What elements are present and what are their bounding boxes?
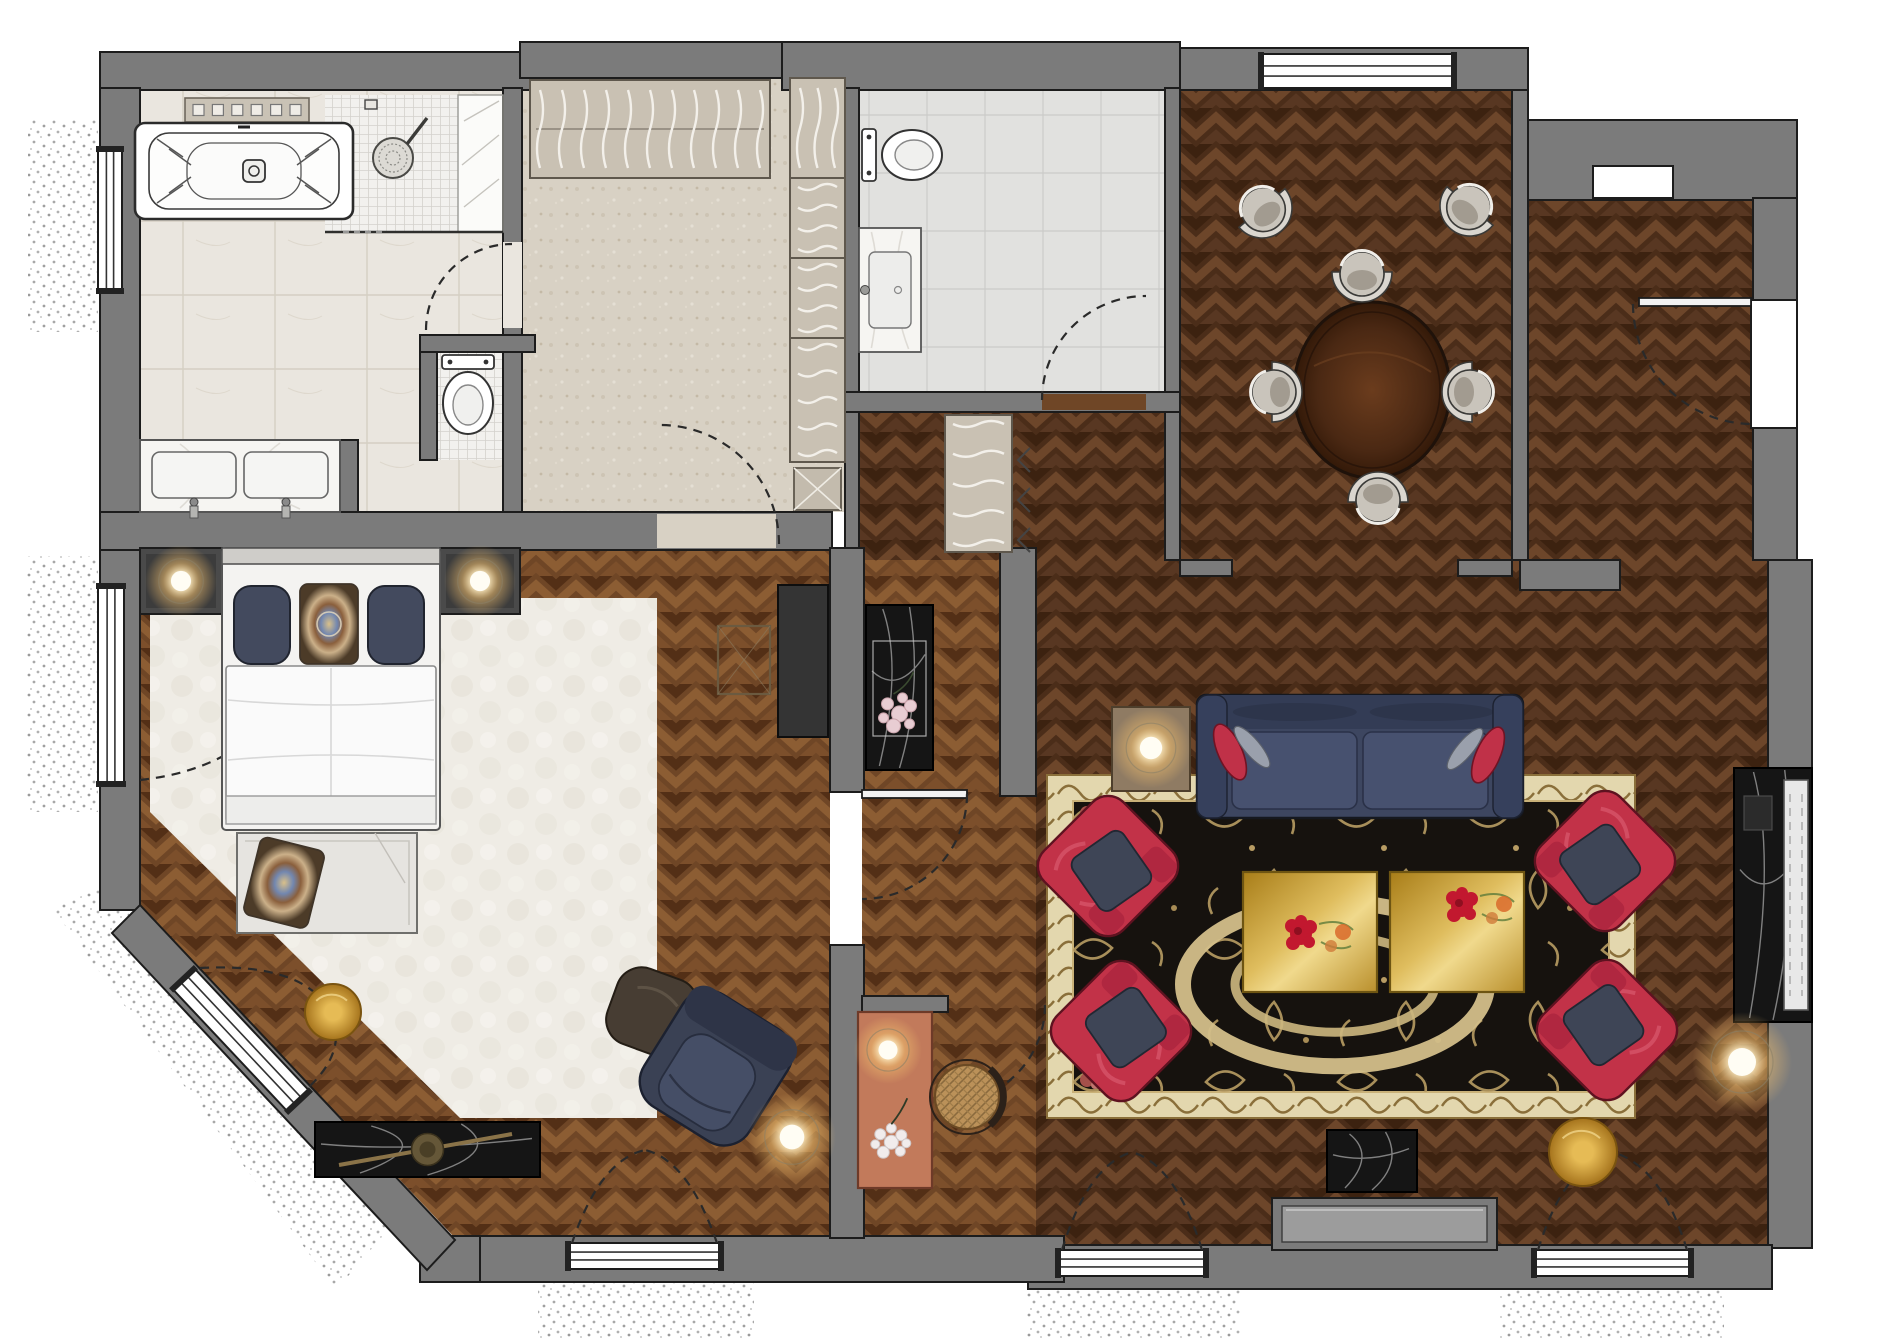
french-window-living-left xyxy=(1055,1248,1209,1278)
window-bathroom-west xyxy=(96,146,124,294)
niche-entry xyxy=(1593,166,1673,198)
tv-sideboard xyxy=(778,585,828,737)
wall-dining-stub-w xyxy=(1180,560,1232,576)
floor-lamp-bedroom xyxy=(748,1093,836,1181)
wall-dining-east xyxy=(1512,90,1528,560)
wall-top-dressing xyxy=(520,42,784,78)
bathtub-shelf xyxy=(185,98,309,122)
wardrobe-col-a xyxy=(790,78,845,178)
coffee-table-gold-right xyxy=(1390,872,1524,992)
balcony-bath-west xyxy=(28,118,98,332)
side-table-marble xyxy=(1327,1130,1417,1192)
entry-door-gap xyxy=(1751,300,1797,428)
pouf-gold-living xyxy=(1549,1118,1617,1186)
balcony-bedroom-west xyxy=(26,556,98,812)
wall-hall-east xyxy=(1000,548,1036,796)
console-marble-bedroom xyxy=(315,1122,540,1177)
wall-toilet-stub-h xyxy=(420,335,535,352)
wall-toilet-stub-v xyxy=(420,335,437,460)
wall-top-bathroom xyxy=(100,52,530,90)
toilet-wc xyxy=(862,129,942,181)
coffee-table-gold-left xyxy=(1243,872,1377,992)
floor-plan-stage xyxy=(0,0,1877,1340)
bench xyxy=(237,833,417,933)
wardrobe-col-d xyxy=(790,338,845,462)
floor-corridor xyxy=(1528,200,1753,560)
coat-closet xyxy=(945,415,1012,552)
lamp-desk xyxy=(854,1016,922,1084)
french-window-bedroom-south xyxy=(565,1241,724,1271)
lamp-nightstand-left xyxy=(145,545,217,617)
window-seat xyxy=(1272,1198,1497,1250)
dining-table xyxy=(1294,302,1450,478)
floor-plan-drawing xyxy=(0,0,1877,1340)
lamp-sofa-table xyxy=(1111,708,1191,788)
french-window-living-right xyxy=(1531,1248,1694,1278)
luggage-rack xyxy=(794,468,841,510)
french-window-bedroom-west xyxy=(96,583,126,787)
wall-nook-top xyxy=(862,996,948,1012)
wardrobe-col-b xyxy=(790,178,845,258)
floor-lamp-living xyxy=(1692,1012,1792,1112)
bed xyxy=(222,548,440,830)
wall-dining-stub-e xyxy=(1458,560,1512,576)
wall-dressing-east xyxy=(845,88,859,550)
fireplace xyxy=(1734,768,1812,1022)
toilet-bathroom xyxy=(442,355,494,434)
wall-bedroom-east-a xyxy=(830,548,864,792)
wall-dining-west xyxy=(1165,88,1180,560)
vanity-double xyxy=(140,440,340,518)
wall-vanity-stub xyxy=(340,440,358,512)
sofa xyxy=(1197,695,1523,818)
wardrobe-col-c xyxy=(790,258,845,338)
wall-south-bedroom xyxy=(452,1236,1064,1282)
lamp-nightstand-right xyxy=(444,545,516,617)
wall-corridor-stub xyxy=(1520,560,1620,590)
basin-wc xyxy=(859,228,921,352)
wardrobe-top xyxy=(530,80,770,178)
pouf-gold-bedroom xyxy=(305,984,361,1040)
console-flowers-hall xyxy=(866,605,933,770)
desk-chair-cane xyxy=(930,1060,1004,1134)
window-dining-north xyxy=(1258,52,1457,90)
wall-east-living-a xyxy=(1768,560,1812,770)
bathtub xyxy=(135,123,353,219)
